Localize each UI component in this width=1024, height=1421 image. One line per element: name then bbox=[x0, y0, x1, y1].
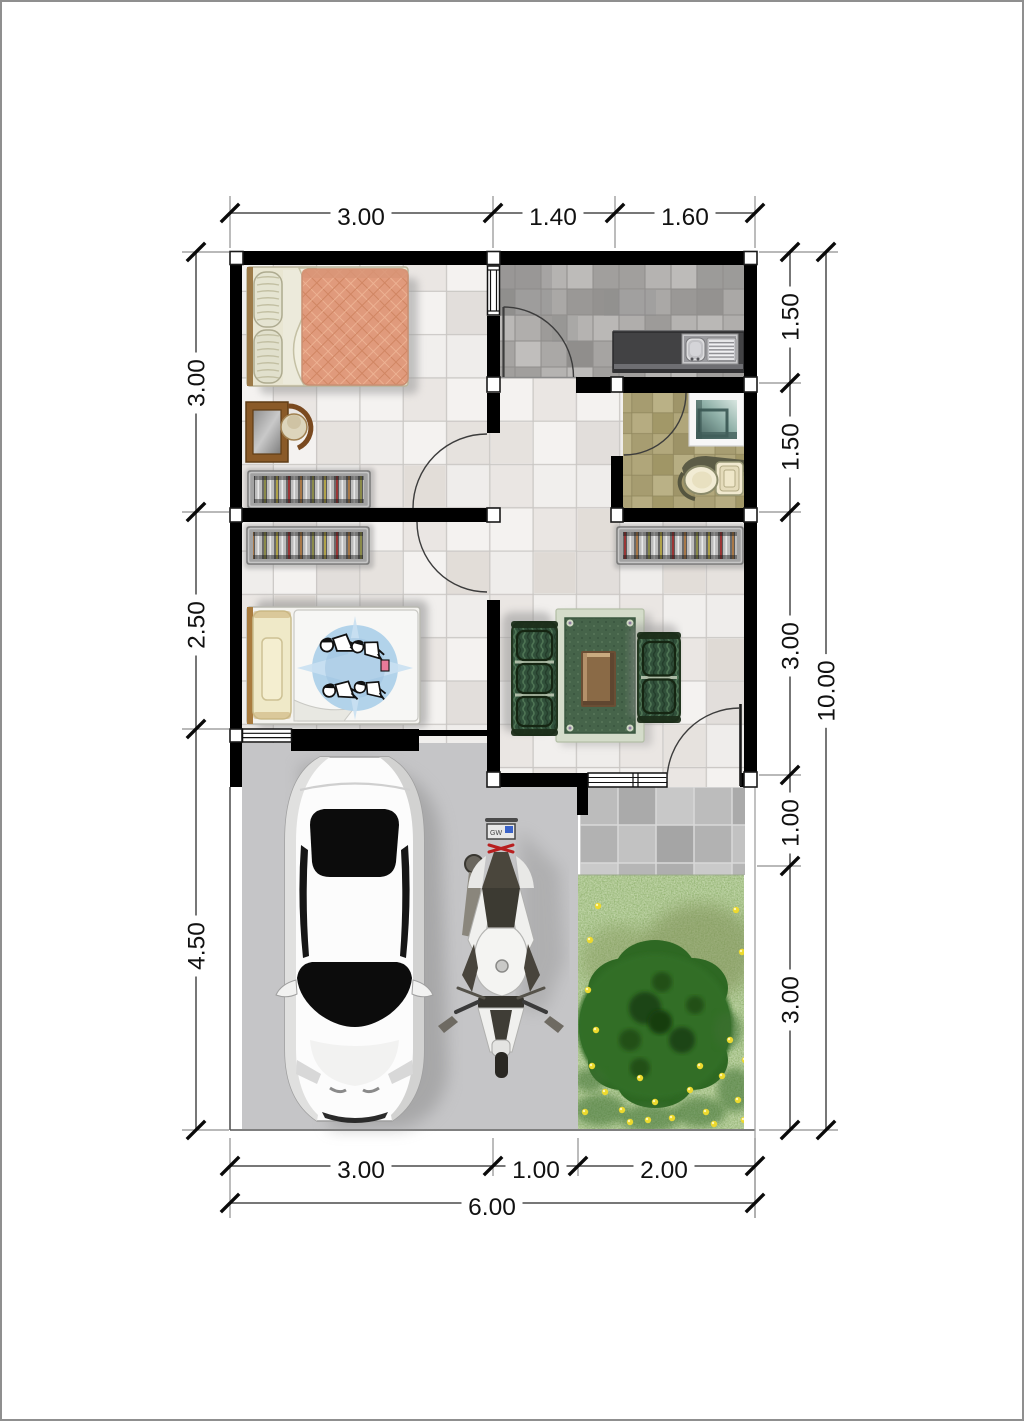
svg-text:GW: GW bbox=[490, 830, 502, 837]
svg-text:2.00: 2.00 bbox=[640, 1157, 688, 1184]
svg-text:3.00: 3.00 bbox=[778, 976, 805, 1024]
svg-text:4.50: 4.50 bbox=[184, 922, 211, 970]
svg-text:1.50: 1.50 bbox=[778, 293, 805, 341]
svg-text:6.00: 6.00 bbox=[468, 1194, 516, 1221]
svg-text:1.40: 1.40 bbox=[529, 204, 577, 231]
svg-text:2.50: 2.50 bbox=[184, 601, 211, 649]
svg-text:3.00: 3.00 bbox=[778, 622, 805, 670]
svg-text:3.00: 3.00 bbox=[337, 1157, 385, 1184]
svg-text:1.00: 1.00 bbox=[778, 799, 805, 847]
svg-text:1.60: 1.60 bbox=[661, 204, 709, 231]
svg-text:1.00: 1.00 bbox=[512, 1157, 560, 1184]
svg-text:10.00: 10.00 bbox=[814, 660, 841, 721]
svg-text:3.00: 3.00 bbox=[337, 204, 385, 231]
svg-text:3.00: 3.00 bbox=[184, 359, 211, 407]
svg-text:1.50: 1.50 bbox=[778, 423, 805, 471]
